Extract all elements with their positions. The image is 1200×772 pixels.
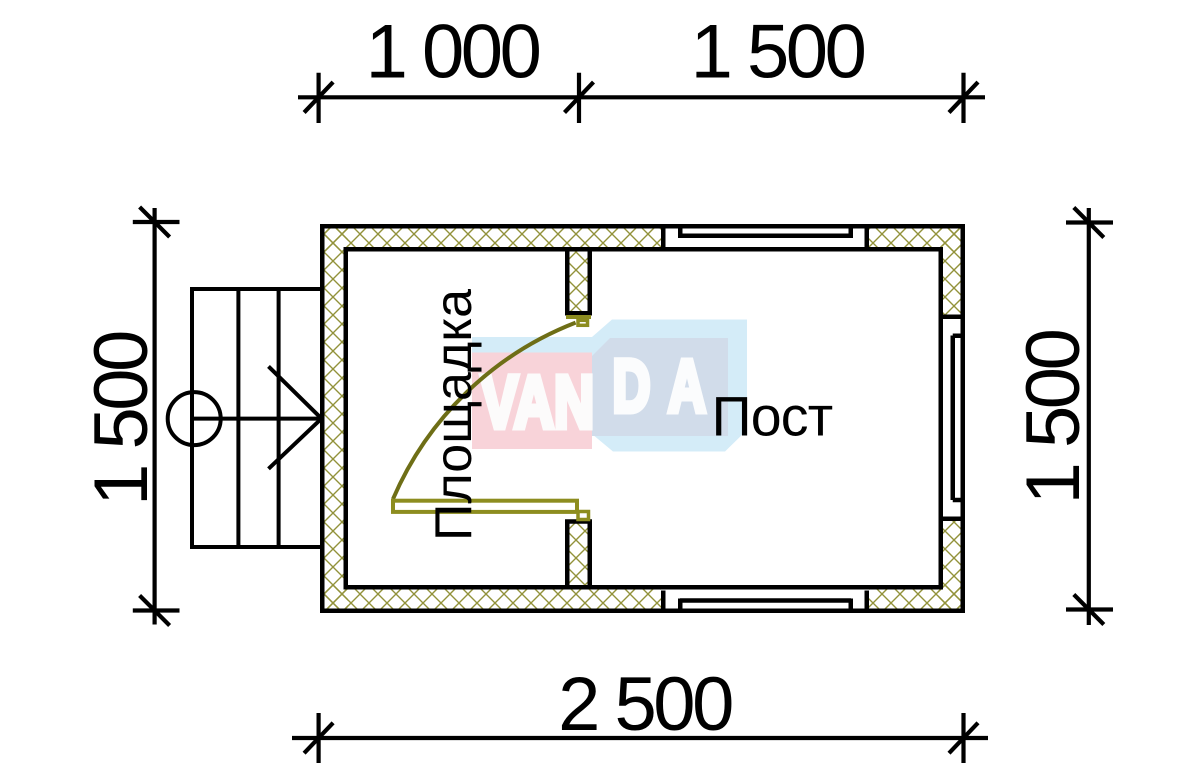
svg-text:1 500: 1 500 bbox=[691, 10, 865, 95]
svg-text:1 000: 1 000 bbox=[366, 10, 540, 95]
svg-text:2 500: 2 500 bbox=[558, 662, 732, 747]
svg-text:Площадка: Площадка bbox=[425, 289, 483, 541]
svg-text:A: A bbox=[668, 345, 706, 428]
svg-text:Пост: Пост bbox=[712, 386, 833, 448]
svg-text:VAN: VAN bbox=[481, 361, 594, 444]
svg-text:1 500: 1 500 bbox=[79, 332, 164, 506]
svg-text:D: D bbox=[613, 345, 651, 428]
svg-text:1 500: 1 500 bbox=[1011, 330, 1096, 504]
